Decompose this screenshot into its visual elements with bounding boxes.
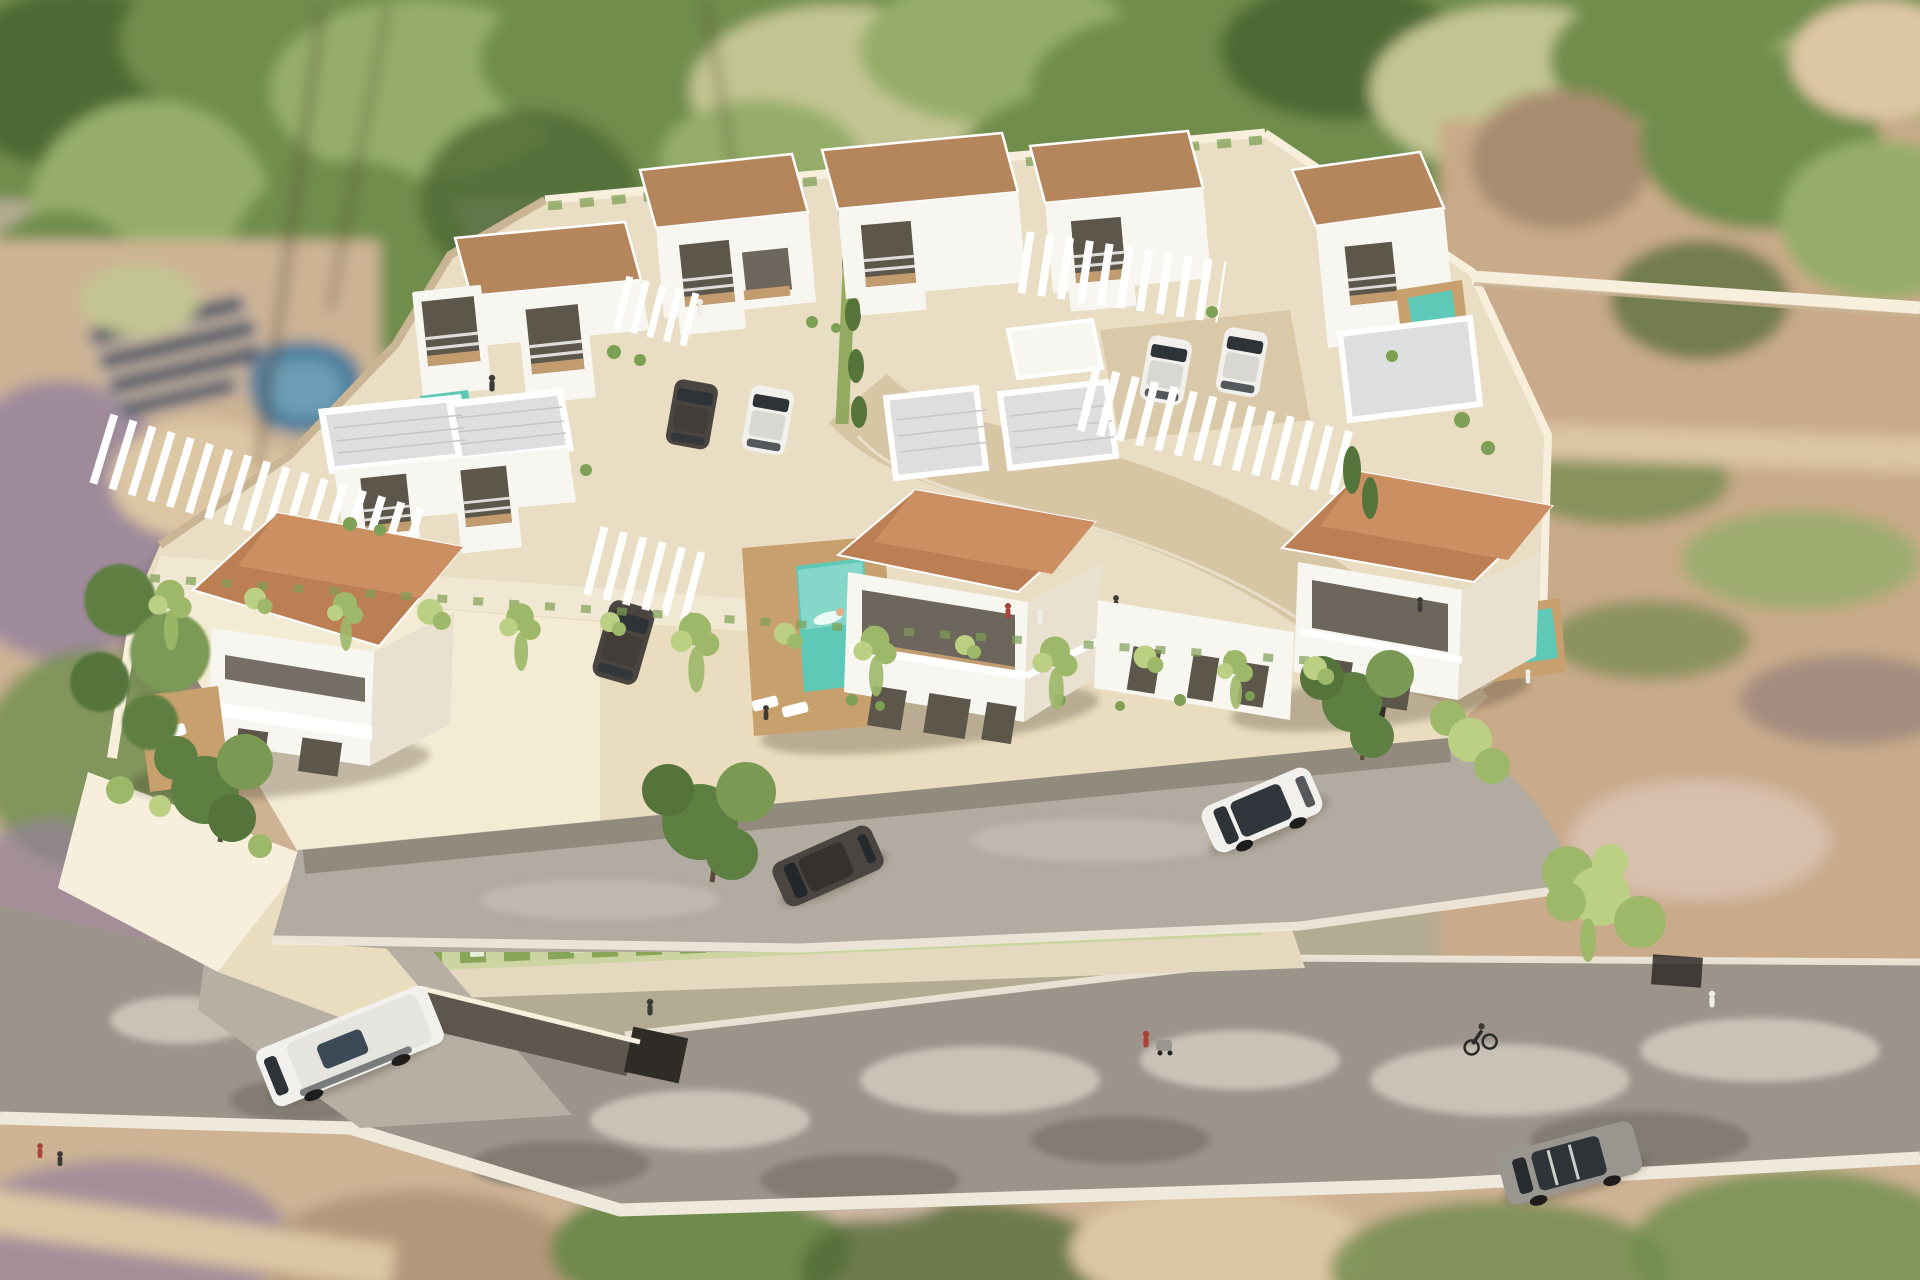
person <box>1037 609 1043 625</box>
balcony-box <box>452 456 522 554</box>
balcony-box <box>412 285 492 397</box>
person <box>1417 597 1423 612</box>
person <box>763 705 769 720</box>
person <box>57 1151 63 1166</box>
person <box>489 375 495 392</box>
balcony-box <box>1336 231 1408 332</box>
render-canvas <box>0 0 1920 1280</box>
pedestrian-gate <box>1651 954 1703 987</box>
balcony-box <box>516 293 596 405</box>
balcony-box <box>670 229 746 335</box>
person <box>1709 991 1715 1008</box>
person <box>37 1143 43 1158</box>
person <box>647 999 653 1016</box>
aerial-render <box>0 0 1920 1280</box>
balcony-box <box>852 210 926 315</box>
person <box>1005 603 1011 619</box>
person <box>697 299 703 316</box>
person <box>1525 669 1530 683</box>
